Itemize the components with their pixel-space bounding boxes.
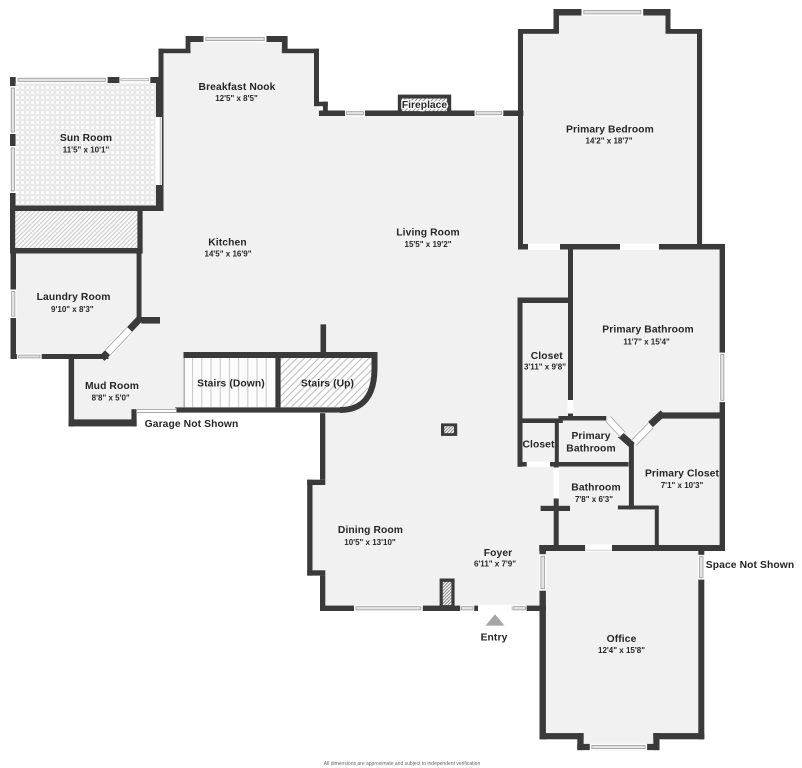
- svg-text:Entry: Entry: [481, 632, 508, 643]
- svg-text:Space Not Shown: Space Not Shown: [706, 560, 794, 571]
- svg-text:Mud Room: Mud Room: [85, 381, 139, 392]
- svg-text:Dining Room: Dining Room: [338, 525, 403, 536]
- svg-text:Kitchen: Kitchen: [208, 238, 246, 249]
- svg-text:All dimensions are approximate: All dimensions are approximate and subje…: [324, 761, 481, 767]
- svg-text:Living Room: Living Room: [396, 227, 459, 238]
- svg-text:Sun Room: Sun Room: [60, 133, 112, 144]
- svg-text:Stairs (Down): Stairs (Down): [197, 378, 265, 389]
- svg-text:3'11" x 9'8": 3'11" x 9'8": [524, 363, 566, 372]
- svg-text:Primary Closet: Primary Closet: [645, 468, 720, 479]
- svg-text:11'5" x 10'1": 11'5" x 10'1": [63, 146, 110, 155]
- svg-text:Foyer: Foyer: [484, 548, 513, 559]
- svg-text:Primary Bathroom: Primary Bathroom: [602, 324, 693, 335]
- svg-text:Closet: Closet: [522, 439, 555, 450]
- svg-text:14'5" x 16'9": 14'5" x 16'9": [205, 250, 252, 259]
- svg-text:Closet: Closet: [531, 351, 564, 362]
- svg-text:12'4" x 15'8": 12'4" x 15'8": [598, 646, 645, 655]
- svg-text:Breakfast Nook: Breakfast Nook: [199, 82, 276, 93]
- svg-text:Garage Not Shown: Garage Not Shown: [145, 419, 239, 430]
- svg-text:Bathroom: Bathroom: [566, 443, 615, 454]
- svg-text:Primary: Primary: [571, 431, 610, 442]
- svg-text:14'2" x 18'7": 14'2" x 18'7": [586, 137, 633, 146]
- svg-text:6'11" x 7'9": 6'11" x 7'9": [474, 559, 516, 568]
- svg-text:7'1" x 10'3": 7'1" x 10'3": [661, 481, 704, 490]
- svg-text:10'5" x 13'10": 10'5" x 13'10": [344, 538, 396, 547]
- svg-text:Laundry Room: Laundry Room: [37, 292, 111, 303]
- svg-text:15'5" x 19'2": 15'5" x 19'2": [405, 240, 452, 249]
- svg-text:Fireplace: Fireplace: [402, 100, 447, 111]
- svg-text:Bathroom: Bathroom: [571, 482, 620, 493]
- svg-text:8'8" x 5'0": 8'8" x 5'0": [92, 393, 130, 402]
- svg-text:11'7" x 15'4": 11'7" x 15'4": [623, 337, 670, 346]
- svg-text:Stairs (Up): Stairs (Up): [301, 378, 354, 389]
- svg-text:Primary Bedroom: Primary Bedroom: [566, 125, 654, 136]
- svg-text:7'8" x 6'3": 7'8" x 6'3": [575, 495, 613, 504]
- svg-text:12'5" x 8'5": 12'5" x 8'5": [215, 94, 258, 103]
- svg-text:Office: Office: [607, 634, 637, 645]
- svg-text:9'10" x 8'3": 9'10" x 8'3": [51, 305, 94, 314]
